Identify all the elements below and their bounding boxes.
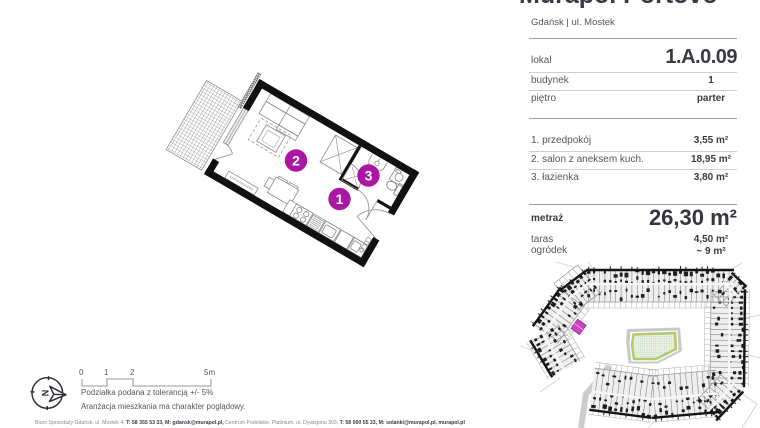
svg-text:N: N <box>40 390 50 397</box>
svg-text:3: 3 <box>365 168 373 184</box>
svg-text:2: 2 <box>292 153 300 169</box>
svg-text:1: 1 <box>336 191 344 207</box>
